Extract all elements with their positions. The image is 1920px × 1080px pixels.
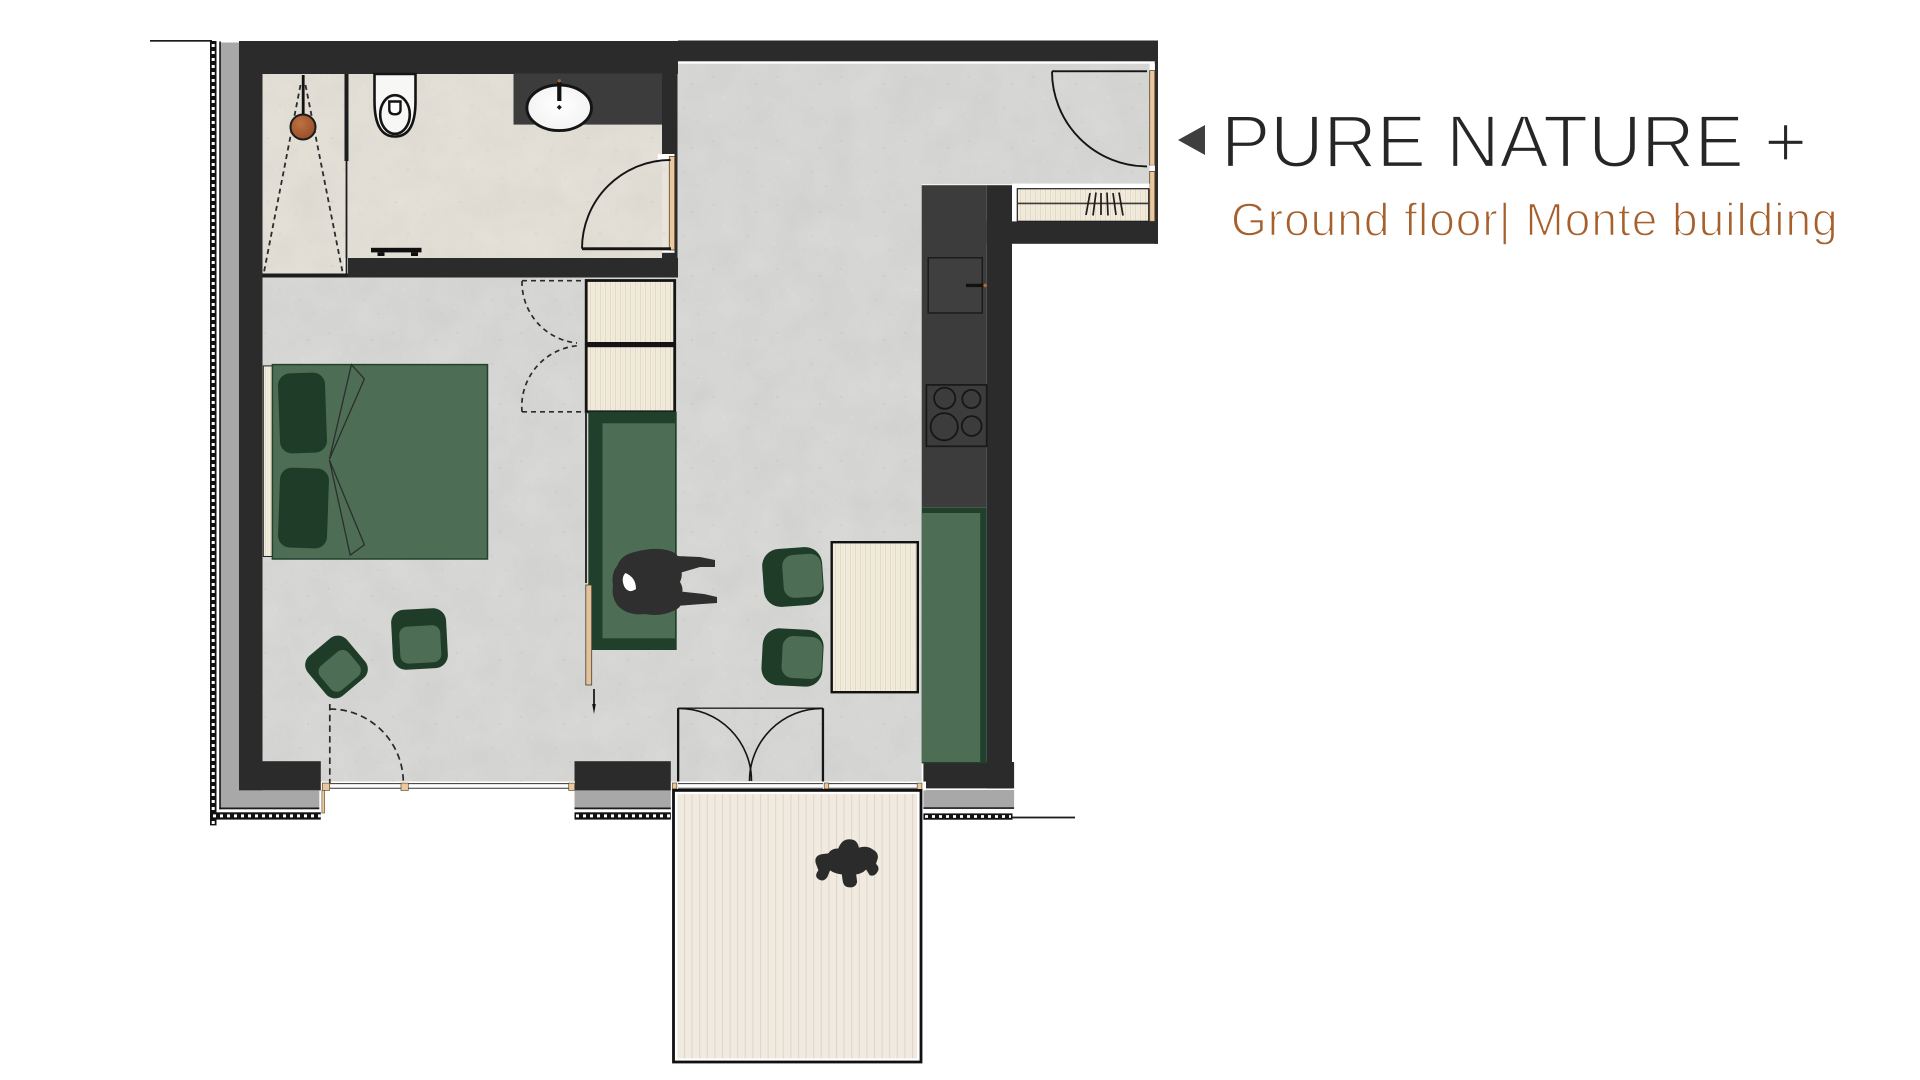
svg-text:PURE NATURE +: PURE NATURE + xyxy=(1221,100,1807,183)
svg-text:Ground floor| Monte building: Ground floor| Monte building xyxy=(1231,194,1839,246)
